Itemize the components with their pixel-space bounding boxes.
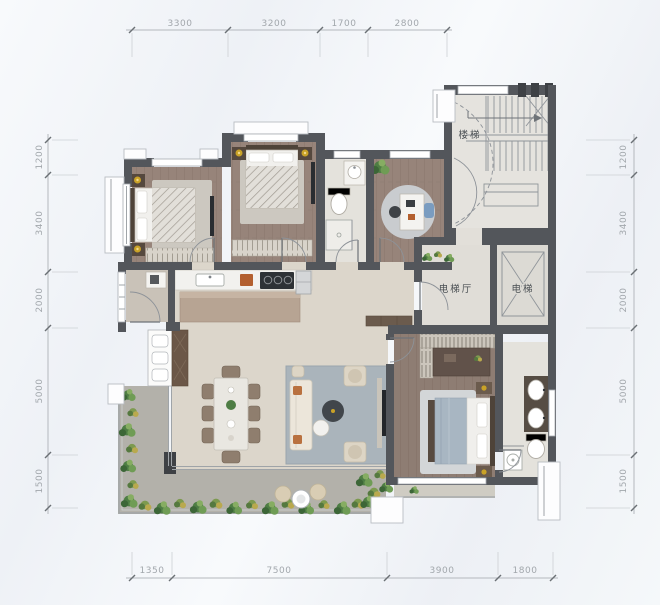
- window-sill: [200, 149, 218, 159]
- dining-chair: [248, 406, 260, 421]
- pillow: [137, 218, 147, 240]
- sofa-pillow: [293, 435, 302, 444]
- floorplan-image: 3300 3200 1700 2800 1350 7500 3900 1800: [0, 0, 660, 605]
- tall-cabinet: [172, 330, 188, 386]
- desk-accent: [408, 214, 415, 220]
- window: [244, 134, 298, 141]
- dim-label: 3300: [168, 19, 193, 29]
- dining-chair: [222, 366, 240, 378]
- laptop: [406, 200, 415, 207]
- dimension-chain-right: 1200 3400 2000 5000 1500: [586, 134, 637, 514]
- wardrobe: [420, 334, 495, 348]
- dim-label: 2000: [35, 288, 45, 313]
- window: [458, 86, 508, 94]
- dim-label: 3400: [35, 211, 45, 236]
- stair-door-floor: [456, 228, 482, 245]
- dining-chair: [222, 451, 240, 463]
- window: [390, 151, 430, 158]
- shoe-cabinet: [366, 316, 412, 326]
- headboard: [130, 188, 135, 242]
- headboard: [246, 145, 298, 150]
- desk-chair: [389, 206, 401, 218]
- sliding-door: [398, 478, 486, 484]
- elevator: 电梯: [502, 252, 544, 316]
- dimension-chain-top: 3300 3200 1700 2800: [126, 19, 452, 57]
- dining-chair: [202, 384, 214, 399]
- headboard: [490, 396, 495, 466]
- ac-platform: [538, 462, 560, 520]
- dining-chair: [248, 428, 260, 443]
- dim-label: 1800: [513, 566, 538, 576]
- tv-console: [377, 378, 382, 448]
- bed-blanket: [246, 166, 298, 208]
- pillow: [477, 434, 487, 458]
- dim-label: 1700: [332, 19, 357, 29]
- basin: [528, 380, 544, 400]
- basin: [528, 408, 544, 428]
- window: [549, 390, 555, 436]
- window-sill: [124, 149, 146, 159]
- bed-blanket: [152, 188, 195, 242]
- side-chair: [424, 203, 434, 218]
- stairs-label: 楼梯: [458, 129, 481, 141]
- dining-chair: [248, 384, 260, 399]
- bay-window: [105, 177, 124, 253]
- dim-label: 5000: [619, 379, 629, 404]
- pouf: [275, 486, 291, 502]
- elevator-label: 电梯: [511, 283, 534, 295]
- ac-platform: [108, 384, 124, 404]
- pillow: [477, 403, 487, 427]
- bed-blanket: [435, 398, 467, 464]
- side-table: [313, 420, 329, 436]
- master-bedroom: [420, 334, 495, 478]
- window: [152, 159, 202, 166]
- dim-label: 1500: [35, 469, 45, 494]
- cutting-board: [240, 274, 253, 286]
- ac-platform: [371, 497, 403, 523]
- tv: [311, 162, 315, 204]
- dimension-chain-left: 1200 3400 2000 5000 1500: [35, 134, 78, 514]
- cooktop: [260, 272, 294, 289]
- fridge: [296, 271, 311, 294]
- wardrobe: [146, 248, 214, 262]
- pillow: [273, 153, 293, 162]
- dim-label: 1500: [619, 469, 629, 494]
- lamp: [481, 385, 486, 390]
- dim-label: 3400: [619, 211, 629, 236]
- dim-label: 3900: [430, 566, 455, 576]
- dim-label: 1350: [140, 566, 165, 576]
- lamp: [481, 469, 486, 474]
- toilet: [528, 440, 545, 459]
- utility-rack: [148, 330, 188, 386]
- dim-label: 2000: [619, 288, 629, 313]
- toilet: [331, 194, 347, 215]
- dim-label: 1200: [35, 145, 45, 170]
- shower: [326, 220, 352, 250]
- wardrobe: [420, 348, 433, 378]
- dresser: [433, 348, 490, 376]
- tv: [210, 196, 214, 236]
- bay-window: [234, 122, 308, 134]
- dining-chair: [202, 428, 214, 443]
- stool: [292, 366, 304, 377]
- ac-platform: [433, 90, 455, 122]
- elevator-hall-label: 电梯厅: [439, 283, 474, 295]
- master-balcony-strip-floor: [394, 484, 495, 498]
- kitchen: [175, 270, 312, 322]
- dim-label: 7500: [267, 566, 292, 576]
- table-plant: [226, 400, 236, 410]
- pillow: [137, 191, 147, 213]
- pouf: [310, 484, 326, 500]
- floorplan-svg: 3300 3200 1700 2800 1350 7500 3900 1800: [0, 0, 660, 605]
- dim-label: 5000: [35, 379, 45, 404]
- bed-bench: [428, 400, 435, 462]
- desk: [400, 194, 424, 230]
- dim-label: 2800: [395, 19, 420, 29]
- dim-label: 3200: [262, 19, 287, 29]
- sofa-pillow: [293, 386, 302, 395]
- dimension-chain-bottom: 1350 7500 3900 1800: [126, 552, 558, 581]
- dim-label: 1200: [619, 145, 629, 170]
- window: [334, 151, 360, 158]
- dining-chair: [202, 406, 214, 421]
- wardrobe: [232, 240, 312, 256]
- pillow: [249, 153, 269, 162]
